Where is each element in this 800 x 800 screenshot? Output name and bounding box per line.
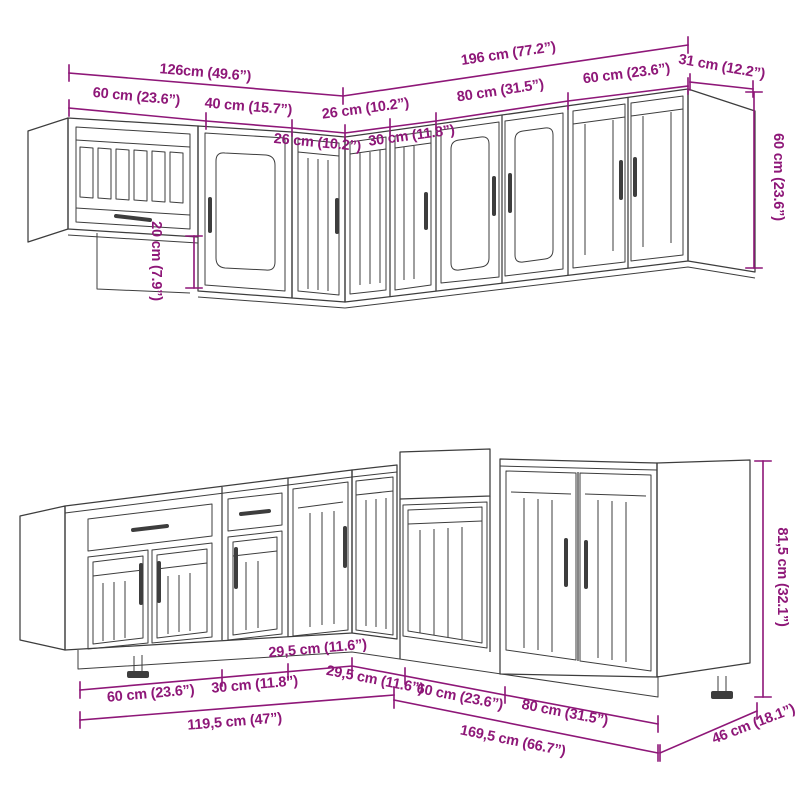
upper-width-60-label: 60 cm (23.6”) <box>92 85 181 109</box>
upper-width-60-right-label: 60 cm (23.6”) <box>582 61 671 88</box>
kitchen-dimension-diagram: 126cm (49.6”) 196 cm (77.2”) 31 cm (12.2… <box>0 0 800 800</box>
base-side-depth-dimension-label: 46 cm (18.1”) <box>710 701 798 747</box>
base-row-dimensions: 60 cm (23.6”) 30 cm (11.8”) 29,5 cm (11.… <box>80 461 798 761</box>
drawer-handle <box>133 526 167 530</box>
base-height-dimension-label: 81,5 cm (32.1”) <box>774 527 790 627</box>
base-width-29-right-label: 29,5 cm (11.6”) <box>325 663 425 698</box>
drawer-handle <box>241 511 269 514</box>
upper-width-80-label: 80 cm (31.5”) <box>456 77 545 106</box>
upper-width-26-left-label: 26 cm (10.2”) <box>273 131 362 155</box>
base-total-left-dimension-label: 119,5 cm (47”) <box>187 710 283 734</box>
upper-cabinet-row-drawing <box>28 89 755 308</box>
upper-width-26-right-label: 26 cm (10.2”) <box>321 95 410 123</box>
upper-height-step-dimension-label: 20 cm (7.9”) <box>148 221 164 301</box>
base-width-80-label: 80 cm (31.5”) <box>520 697 609 730</box>
base-cabinet-row-drawing <box>20 449 750 699</box>
cabinet-leg-foot <box>127 671 149 678</box>
cabinet-leg-foot <box>711 691 733 699</box>
upper-width-40-label: 40 cm (15.7”) <box>204 95 293 118</box>
diagram-canvas: 126cm (49.6”) 196 cm (77.2”) 31 cm (12.2… <box>0 0 800 800</box>
upper-total-right-dimension-label: 196 cm (77.2”) <box>460 39 557 69</box>
cabinet-handle <box>116 216 150 220</box>
base-total-right-dimension-label: 169,5 cm (66.7”) <box>459 722 568 759</box>
upper-height-dimension-label: 60 cm (23.6”) <box>770 133 786 221</box>
base-width-29-left-label: 29,5 cm (11.6”) <box>268 637 368 662</box>
